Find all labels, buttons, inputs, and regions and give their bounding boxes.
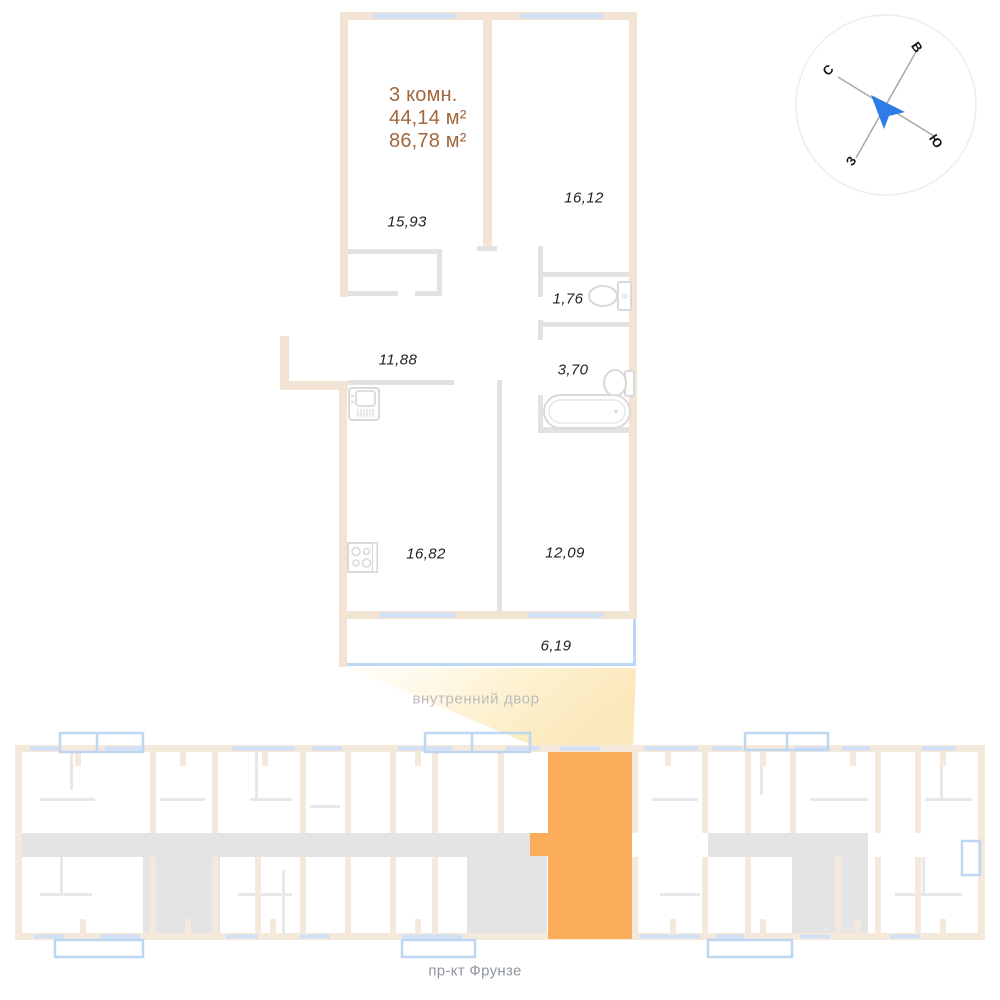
room-area-label-balcony: 6,19 bbox=[541, 638, 572, 655]
room-area-label-living-room-2: 16,12 bbox=[564, 190, 604, 207]
courtyard-beam bbox=[349, 668, 636, 752]
unit-living-area: 44,14 м² bbox=[389, 107, 467, 130]
unit-rooms-label: 3 комн. bbox=[389, 84, 467, 107]
building-floor-strip bbox=[15, 733, 985, 957]
unit-total-area: 86,78 м² bbox=[389, 130, 467, 153]
compass bbox=[796, 15, 976, 195]
room-area-label-living-room-3: 12,09 bbox=[545, 545, 585, 562]
apartment-plan-page: 3 комн. 44,14 м² 86,78 м² 15,93 16,12 1,… bbox=[0, 0, 1000, 1000]
room-area-label-hallway: 11,88 bbox=[379, 352, 417, 369]
room-area-label-living-room-1: 15,93 bbox=[387, 214, 427, 231]
building-cores bbox=[22, 833, 868, 940]
unit-card: 3 комн. 44,14 м² 86,78 м² bbox=[389, 84, 467, 153]
room-area-label-bathroom: 3,70 bbox=[558, 362, 589, 379]
plan-canvas bbox=[0, 0, 1000, 1000]
stove-icon bbox=[348, 543, 377, 572]
apartment-balcony-glazing bbox=[347, 619, 636, 666]
street-label: пр-кт Фрунзе bbox=[428, 963, 521, 980]
bathtub-icon bbox=[544, 395, 630, 428]
room-area-label-kitchen: 16,82 bbox=[406, 546, 446, 563]
kitchen-sink-icon bbox=[349, 388, 379, 420]
sink-icon bbox=[604, 370, 634, 396]
courtyard-label: внутренний двор bbox=[412, 691, 539, 708]
toilet-icon bbox=[589, 282, 631, 310]
room-area-label-wc: 1,76 bbox=[553, 291, 584, 308]
